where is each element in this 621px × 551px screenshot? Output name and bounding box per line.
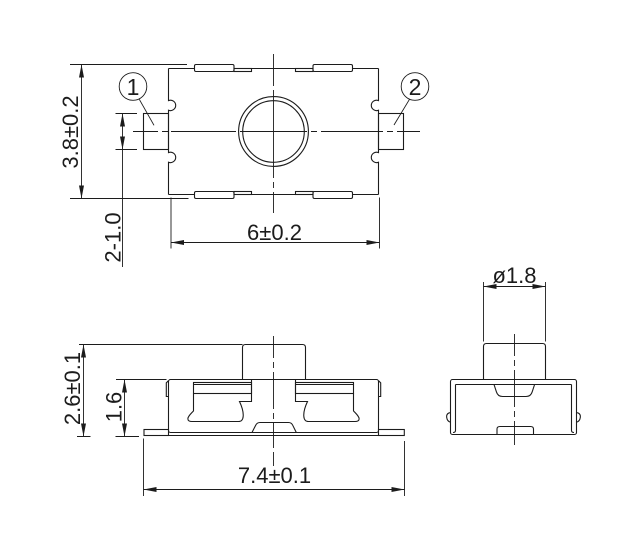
svg-text:ø1.8: ø1.8 [492,263,536,288]
svg-text:3.8±0.2: 3.8±0.2 [58,95,83,168]
svg-text:2: 2 [409,74,422,100]
svg-text:1.6: 1.6 [102,392,127,423]
svg-text:1: 1 [127,74,140,100]
svg-text:6±0.2: 6±0.2 [247,220,302,245]
svg-text:7.4±0.1: 7.4±0.1 [238,463,311,488]
svg-text:2-1.0: 2-1.0 [101,212,126,262]
svg-text:2.6±0.1: 2.6±0.1 [60,352,85,425]
